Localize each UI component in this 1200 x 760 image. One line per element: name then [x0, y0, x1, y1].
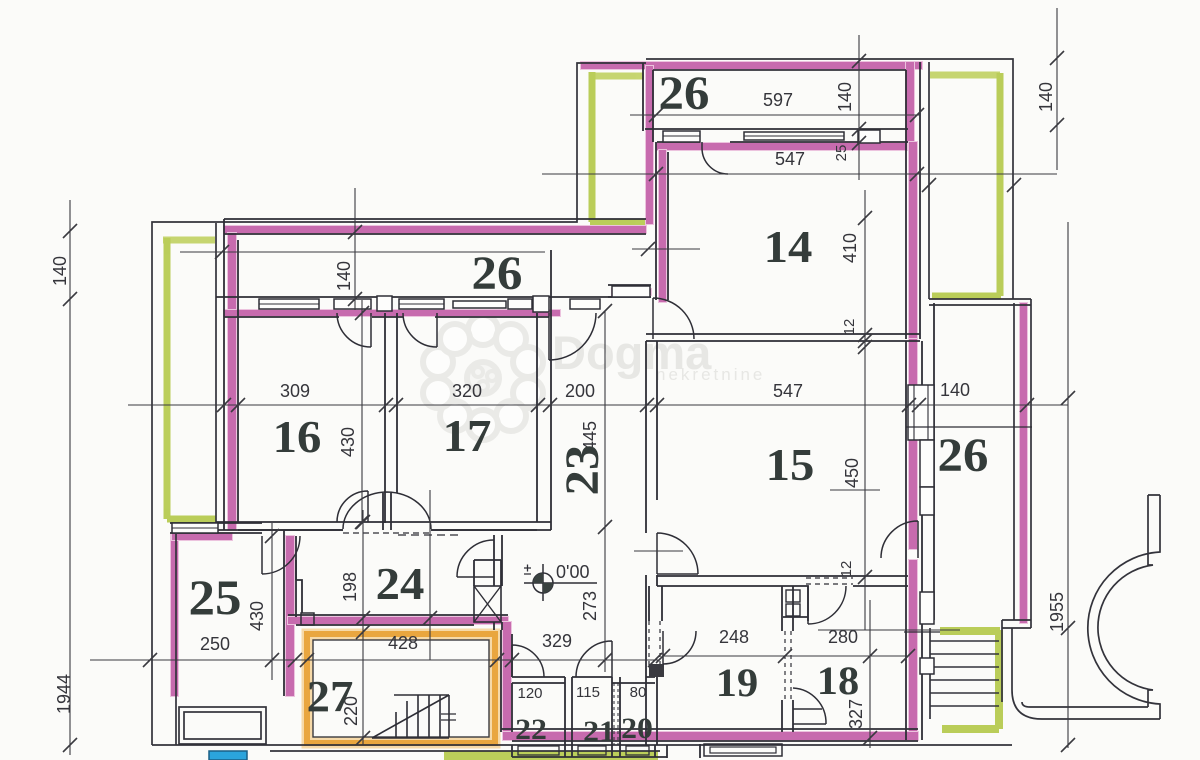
svg-text:327: 327 [846, 699, 866, 729]
svg-text:547: 547 [775, 149, 805, 169]
svg-text:16: 16 [273, 411, 322, 462]
svg-text:120: 120 [517, 685, 542, 702]
svg-text:140: 140 [835, 82, 855, 112]
svg-text:27: 27 [307, 672, 354, 721]
svg-text:20: 20 [621, 712, 653, 745]
svg-text:19: 19 [716, 660, 758, 705]
svg-text:0'00: 0'00 [556, 562, 589, 582]
svg-text:200: 200 [565, 381, 595, 401]
svg-text:22: 22 [515, 713, 547, 746]
svg-text:198: 198 [340, 572, 360, 602]
svg-text:26: 26 [938, 429, 989, 482]
svg-text:14: 14 [764, 221, 813, 272]
svg-text:18: 18 [817, 658, 859, 703]
svg-text:21: 21 [583, 715, 615, 748]
svg-text:430: 430 [338, 427, 358, 457]
svg-text:280: 280 [828, 627, 858, 647]
svg-text:428: 428 [388, 633, 418, 653]
svg-text:12: 12 [841, 319, 858, 336]
svg-text:23: 23 [556, 445, 609, 496]
svg-text:410: 410 [840, 233, 860, 263]
svg-text:12: 12 [838, 561, 855, 578]
svg-text:597: 597 [763, 90, 793, 110]
svg-text:nekretnine: nekretnine [656, 365, 765, 384]
svg-text:1955: 1955 [1047, 592, 1067, 632]
svg-text:15: 15 [766, 439, 815, 490]
svg-text:250: 250 [200, 634, 230, 654]
svg-text:24: 24 [376, 558, 425, 609]
svg-text:25: 25 [189, 569, 242, 625]
svg-text:309: 309 [280, 381, 310, 401]
svg-text:140: 140 [940, 380, 970, 400]
svg-text:115: 115 [576, 684, 600, 701]
svg-text:1944: 1944 [54, 674, 74, 714]
svg-text:140: 140 [50, 256, 70, 286]
svg-text:25: 25 [833, 145, 850, 162]
svg-text:80: 80 [630, 684, 647, 701]
svg-text:273: 273 [580, 591, 600, 621]
svg-text:450: 450 [842, 458, 862, 488]
svg-text:26: 26 [659, 67, 710, 120]
svg-text:140: 140 [1036, 82, 1056, 112]
svg-text:26: 26 [472, 247, 523, 300]
svg-text:430: 430 [247, 601, 267, 631]
svg-text:248: 248 [719, 627, 749, 647]
svg-text:17: 17 [443, 410, 492, 461]
svg-text:320: 320 [452, 381, 482, 401]
svg-text:329: 329 [542, 631, 572, 651]
svg-text:547: 547 [773, 381, 803, 401]
svg-text:140: 140 [334, 261, 354, 291]
